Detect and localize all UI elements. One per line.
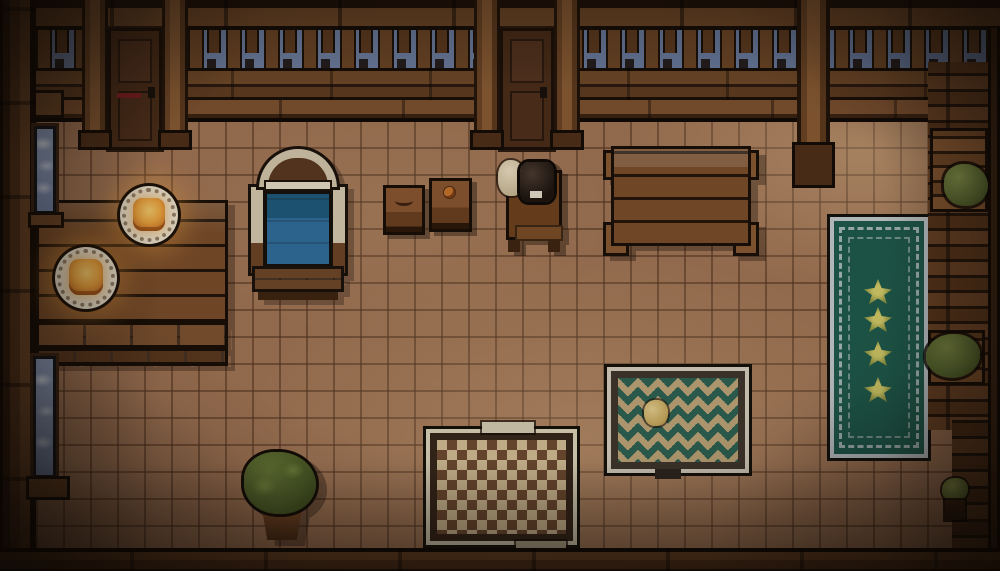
dark-jar bbox=[520, 162, 554, 202]
pillar bbox=[474, 0, 500, 150]
plate-with-food[interactable] bbox=[120, 186, 178, 244]
window-sill bbox=[26, 476, 70, 500]
pillar bbox=[554, 0, 580, 150]
checker-rug[interactable] bbox=[426, 429, 577, 545]
pillar-base bbox=[78, 130, 112, 150]
window-upper bbox=[34, 126, 56, 214]
bed-footboard bbox=[252, 266, 344, 292]
bed-foot-lip bbox=[258, 292, 338, 300]
table-edge bbox=[36, 322, 228, 348]
bed-rail-right bbox=[330, 184, 348, 276]
door-left[interactable] bbox=[108, 28, 162, 150]
table-edge-lower bbox=[36, 348, 228, 366]
side-table[interactable] bbox=[603, 146, 759, 256]
bread-item bbox=[644, 400, 668, 426]
rug-tab bbox=[655, 469, 681, 479]
crate-fruit bbox=[444, 187, 455, 198]
nightstand[interactable] bbox=[504, 160, 564, 252]
crate-contents bbox=[395, 196, 413, 206]
potted-bush[interactable] bbox=[244, 452, 316, 542]
door-panel bbox=[510, 91, 544, 141]
right-wall-edge bbox=[988, 28, 1000, 571]
nightstand-leg bbox=[548, 240, 560, 252]
rug-diamond-pattern bbox=[618, 378, 738, 462]
pillar-base bbox=[470, 130, 504, 150]
bottom-wall bbox=[0, 548, 1000, 571]
door-handle bbox=[148, 87, 155, 98]
top-beam bbox=[0, 0, 1000, 30]
nightstand-leg bbox=[508, 240, 520, 252]
rug-border-pattern-inner bbox=[848, 237, 910, 438]
pillar bbox=[797, 0, 830, 188]
pillar-base bbox=[550, 130, 584, 150]
green-runner-rug[interactable] bbox=[830, 217, 928, 458]
bed[interactable] bbox=[248, 146, 348, 300]
table-top bbox=[611, 146, 751, 246]
pillar bbox=[162, 0, 188, 150]
plate-with-food[interactable] bbox=[55, 247, 117, 309]
small-potted-plant[interactable] bbox=[938, 478, 972, 522]
bed-pillow bbox=[264, 180, 332, 191]
pillar bbox=[82, 0, 108, 150]
window-lower bbox=[33, 356, 56, 478]
door-panel bbox=[118, 39, 152, 83]
pillar-base bbox=[792, 142, 835, 188]
door-panel bbox=[118, 91, 152, 141]
jar-label bbox=[530, 191, 542, 198]
shelf-plant-upper[interactable] bbox=[944, 164, 988, 206]
bed-blanket bbox=[264, 191, 332, 267]
glowing-food bbox=[69, 259, 104, 295]
pillar-base bbox=[158, 130, 192, 150]
door-panel bbox=[510, 39, 544, 83]
crate-right[interactable] bbox=[429, 178, 472, 232]
door-latch-bar bbox=[117, 93, 141, 98]
nightstand-drawer bbox=[515, 225, 563, 241]
crate-left[interactable] bbox=[383, 185, 425, 235]
scene-canvas bbox=[0, 0, 1000, 571]
door-center[interactable] bbox=[500, 28, 554, 150]
bush-leaves bbox=[244, 452, 316, 514]
window-sill bbox=[28, 212, 64, 228]
glowing-food bbox=[133, 198, 165, 232]
diamond-rug[interactable] bbox=[607, 367, 749, 473]
plant-pot bbox=[945, 500, 965, 520]
rug-tab bbox=[482, 422, 534, 433]
rug-checker-pattern bbox=[437, 440, 566, 534]
plant-leaves bbox=[942, 478, 968, 502]
door-handle bbox=[540, 87, 547, 98]
